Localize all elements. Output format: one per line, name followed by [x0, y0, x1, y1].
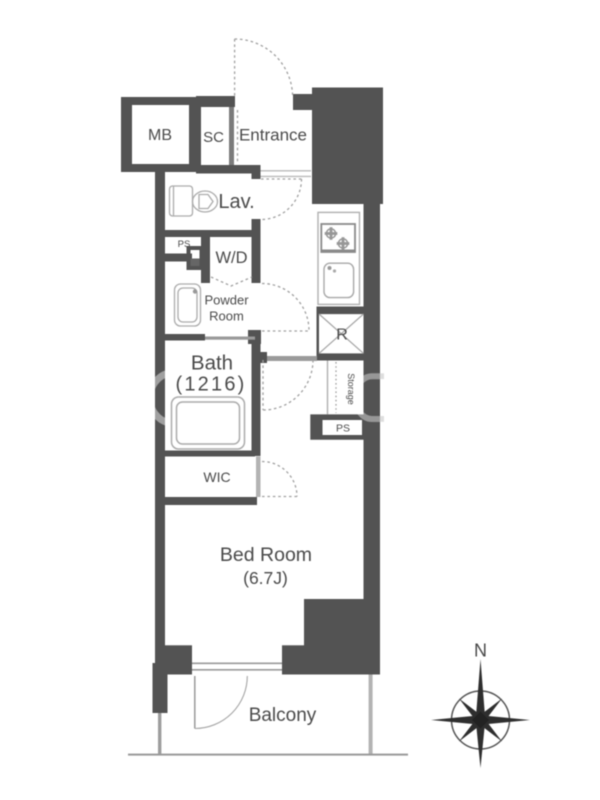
- svg-text:Balcony: Balcony: [249, 705, 317, 726]
- svg-text:Storage: Storage: [346, 373, 356, 405]
- svg-text:WIC: WIC: [203, 469, 230, 485]
- svg-text:Entrance: Entrance: [239, 126, 307, 145]
- svg-text:N: N: [474, 641, 487, 661]
- svg-text:Lav.: Lav.: [218, 191, 254, 213]
- svg-text:(6.7J): (6.7J): [243, 568, 288, 588]
- svg-text:Room: Room: [209, 309, 244, 324]
- svg-text:(1216): (1216): [175, 374, 246, 396]
- svg-text:Bath: Bath: [191, 352, 233, 375]
- svg-text:PS: PS: [178, 239, 191, 250]
- svg-text:Powder: Powder: [204, 293, 249, 308]
- svg-text:R: R: [336, 327, 348, 344]
- svg-text:Bed Room: Bed Room: [220, 544, 312, 566]
- svg-text:W/D: W/D: [215, 249, 247, 267]
- svg-text:MB: MB: [148, 127, 172, 144]
- svg-text:SC: SC: [203, 129, 224, 146]
- svg-text:PS: PS: [336, 423, 350, 435]
